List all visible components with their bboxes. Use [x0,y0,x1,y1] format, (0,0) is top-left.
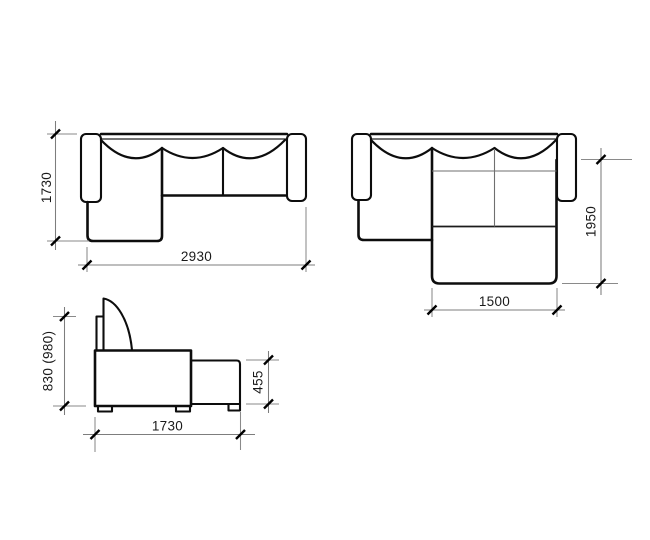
dimension-bed-width-1500: 1500 [424,288,565,317]
back-cushion-arc [162,148,223,158]
drawing-canvas: 1730 2930 [0,0,650,540]
left-armrest [81,134,101,202]
back-cushion-arc [101,140,162,158]
sofa-body [95,351,191,407]
back-cushion-arc [223,140,285,158]
back-cushion-arc [495,140,557,158]
right-armrest [557,134,576,201]
dimension-bed-length-1950: 1950 [562,148,632,295]
backrest-cushion-profile [104,299,133,351]
dimension-label-width: 2930 [181,249,212,264]
dimension-label-bed-length: 1950 [584,206,599,237]
back-frame [97,317,104,351]
sofa-foot [176,406,190,412]
dimension-width-2930: 2930 [78,207,315,272]
dimension-height-830-980: 830 (980) [41,307,87,415]
sofa-dimension-drawing: 1730 2930 [0,0,650,540]
chaise-outline [359,201,433,241]
chaise-outline [88,148,163,241]
dimension-label-ottoman-height: 455 [251,370,266,393]
dimension-label-side-depth: 1730 [152,419,183,434]
sofa-foot [229,404,241,411]
right-armrest [287,134,306,201]
view-plan-unfolded: 1950 1500 [352,134,632,317]
dimension-label-bed-width: 1500 [479,294,510,309]
dimension-label-height: 830 (980) [41,331,56,392]
dimension-ottoman-height-455: 455 [246,351,279,413]
ottoman-section [191,361,240,405]
dimension-side-depth-1730: 1730 [83,412,255,452]
back-cushion-arc [371,140,432,158]
dimension-label-depth: 1730 [39,172,54,203]
back-cushion-arc [432,148,495,158]
view-side-elevation: 830 (980) 455 1730 [41,299,280,453]
left-armrest [352,134,371,200]
view-plan-folded: 1730 2930 [39,121,315,272]
sofa-foot [98,406,112,412]
